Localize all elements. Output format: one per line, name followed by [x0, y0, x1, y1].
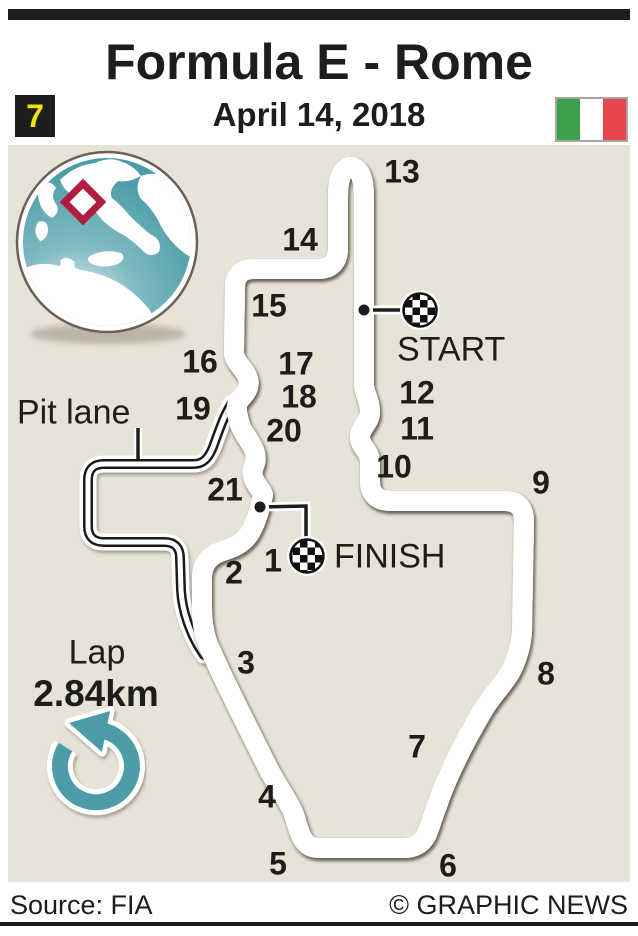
turn-label-21: 21 [207, 472, 243, 509]
turn-label-4: 4 [258, 779, 276, 816]
start-dot [359, 305, 370, 316]
race-number: 7 [26, 98, 44, 135]
start-flag-icon [404, 294, 437, 327]
circuit-map: 1 2 3 4 5 6 7 8 9 10 11 12 13 14 15 16 1… [8, 145, 630, 882]
flag-green-stripe [557, 99, 580, 140]
source-text: Source: FIA [10, 890, 153, 921]
direction-arrow-icon [60, 711, 132, 802]
turn-label-5: 5 [269, 846, 287, 883]
globe-inset-map [17, 152, 200, 344]
lap-distance: 2.84km [33, 673, 159, 715]
turn-label-13: 13 [384, 154, 420, 191]
header-rule [8, 9, 630, 20]
turn-label-2: 2 [225, 555, 243, 592]
track-surface [202, 167, 524, 848]
lap-label: Lap [69, 634, 126, 673]
finish-flag-icon [291, 540, 324, 573]
race-track [202, 167, 524, 848]
flag-red-stripe [603, 99, 626, 140]
pit-lane-label: Pit lane [17, 394, 130, 433]
turn-label-15: 15 [251, 288, 287, 325]
turn-label-10: 10 [376, 449, 412, 486]
turn-label-17: 17 [278, 346, 314, 383]
footer-rule [0, 922, 638, 926]
race-date: April 14, 2018 [0, 96, 638, 134]
finish-dot [255, 502, 266, 513]
page-title: Formula E - Rome [0, 33, 638, 91]
turn-label-8: 8 [537, 656, 555, 693]
turn-label-3: 3 [237, 645, 255, 682]
turn-label-20: 20 [266, 413, 302, 450]
turn-label-9: 9 [532, 465, 550, 502]
finish-label: FINISH [334, 538, 445, 577]
turn-label-11: 11 [400, 411, 434, 448]
turn-label-18: 18 [281, 379, 317, 416]
turn-label-14: 14 [282, 222, 318, 259]
italy-flag-icon [555, 97, 628, 142]
turn-label-6: 6 [439, 848, 457, 885]
turn-label-1: 1 [264, 543, 282, 580]
turn-label-7: 7 [408, 729, 426, 766]
circuit-svg [8, 145, 630, 882]
credit-text: © GRAPHIC NEWS [389, 890, 628, 921]
infographic: Formula E - Rome April 14, 2018 7 [0, 0, 638, 936]
finish-marker [251, 498, 327, 576]
flag-white-stripe [580, 99, 603, 140]
start-label: START [397, 331, 505, 370]
turn-label-16: 16 [182, 344, 218, 381]
turn-label-19: 19 [175, 391, 211, 428]
race-number-badge: 7 [15, 95, 55, 137]
turn-label-12: 12 [399, 375, 435, 412]
